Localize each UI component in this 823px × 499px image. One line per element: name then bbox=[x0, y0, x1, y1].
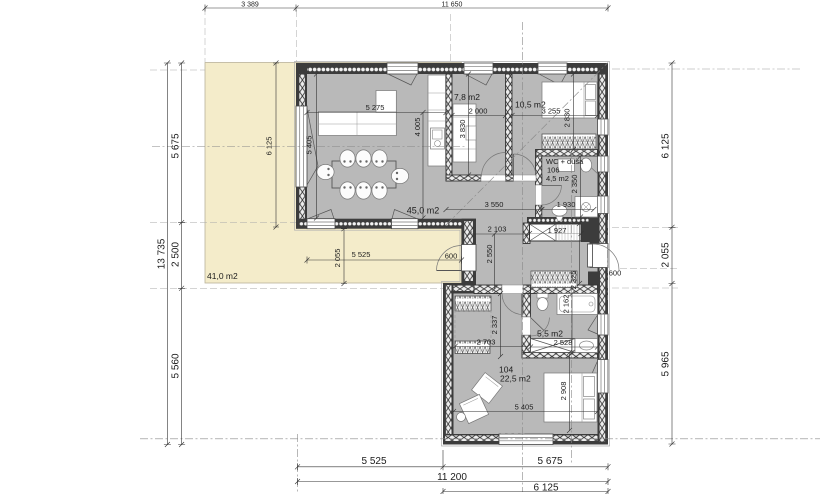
svg-text:2 703: 2 703 bbox=[477, 338, 496, 347]
svg-text:2 162: 2 162 bbox=[562, 295, 571, 314]
svg-text:2 500: 2 500 bbox=[171, 242, 182, 267]
svg-text:3 550: 3 550 bbox=[485, 200, 504, 209]
svg-text:5 675: 5 675 bbox=[537, 456, 562, 467]
svg-text:6 125: 6 125 bbox=[661, 133, 672, 158]
svg-text:2 528: 2 528 bbox=[554, 338, 573, 347]
svg-text:1 930: 1 930 bbox=[557, 200, 576, 209]
svg-text:5 405: 5 405 bbox=[515, 403, 534, 412]
svg-text:5 275: 5 275 bbox=[366, 103, 385, 112]
svg-text:22,5 m2: 22,5 m2 bbox=[500, 374, 531, 384]
svg-text:5 525: 5 525 bbox=[352, 250, 371, 259]
svg-text:3 830: 3 830 bbox=[458, 120, 467, 139]
svg-text:6 125: 6 125 bbox=[265, 137, 274, 156]
svg-text:6 125: 6 125 bbox=[533, 483, 558, 494]
svg-text:2 908: 2 908 bbox=[559, 382, 568, 401]
svg-text:2 103: 2 103 bbox=[488, 225, 507, 234]
svg-text:2 325: 2 325 bbox=[569, 271, 578, 290]
svg-text:7,8 m2: 7,8 m2 bbox=[454, 92, 480, 102]
svg-text:3 389: 3 389 bbox=[241, 2, 259, 9]
svg-text:3 255: 3 255 bbox=[542, 107, 561, 116]
svg-text:2 550: 2 550 bbox=[485, 245, 494, 264]
svg-text:2 055: 2 055 bbox=[333, 249, 342, 268]
svg-text:5 525: 5 525 bbox=[361, 456, 386, 467]
svg-text:2 055: 2 055 bbox=[661, 242, 672, 267]
svg-text:4,5 m2: 4,5 m2 bbox=[546, 174, 569, 183]
svg-text:5,5 m2: 5,5 m2 bbox=[537, 329, 563, 339]
svg-text:2 337: 2 337 bbox=[490, 316, 499, 335]
svg-text:4 005: 4 005 bbox=[413, 118, 422, 137]
svg-text:5 405: 5 405 bbox=[305, 136, 314, 155]
svg-text:41,0 m2: 41,0 m2 bbox=[207, 271, 238, 281]
svg-text:13 735: 13 735 bbox=[156, 238, 167, 269]
svg-text:5 560: 5 560 bbox=[171, 353, 182, 378]
svg-text:2 000: 2 000 bbox=[469, 107, 488, 116]
svg-text:5 675: 5 675 bbox=[171, 133, 182, 158]
svg-text:1 927: 1 927 bbox=[548, 226, 567, 235]
svg-text:2 830: 2 830 bbox=[563, 109, 572, 128]
svg-text:600: 600 bbox=[609, 269, 622, 278]
svg-text:5 965: 5 965 bbox=[661, 351, 672, 376]
svg-text:11 650: 11 650 bbox=[442, 2, 463, 9]
svg-text:600: 600 bbox=[445, 252, 458, 261]
svg-text:2 350: 2 350 bbox=[570, 175, 579, 194]
svg-text:11 200: 11 200 bbox=[437, 472, 467, 483]
